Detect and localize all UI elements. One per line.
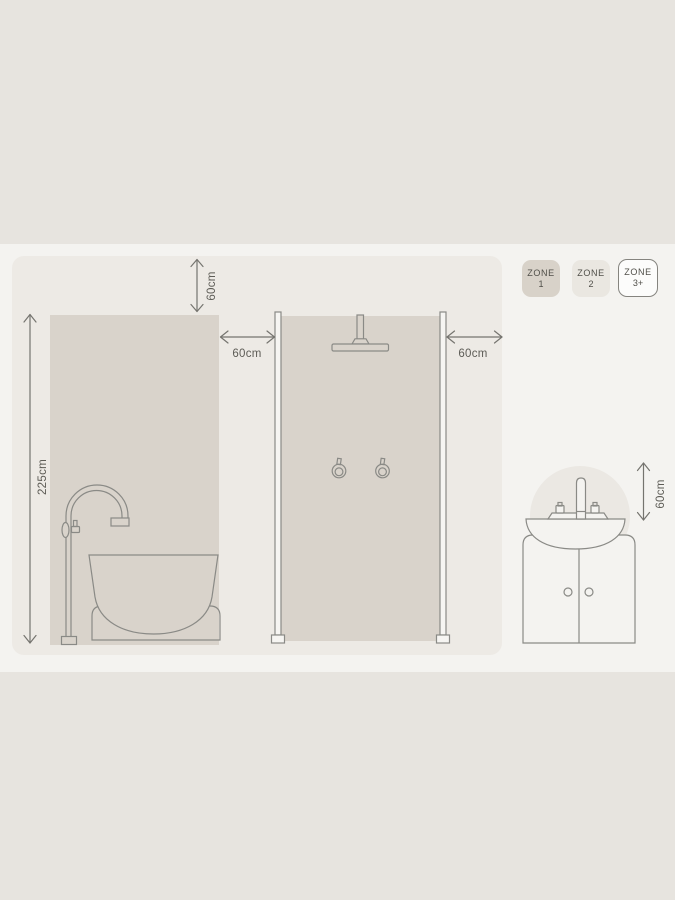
zone-circle-basin [530, 466, 630, 566]
zone1-area-shower [281, 316, 440, 641]
legend-zone2-title: ZONE [577, 268, 604, 279]
zone-height-label: 225cm [36, 452, 50, 502]
legend-zone1-title: ZONE [527, 268, 554, 279]
legend-badge-zone1: ZONE 1 [522, 260, 560, 297]
legend-zone1-value: 1 [538, 279, 543, 290]
shower-clearance-label: 60cm [448, 347, 498, 361]
legend-badge-zone2: ZONE 2 [572, 260, 610, 297]
bathroom-zones-diagram: 60cm 225cm 60cm 60cm 60cm ZONE 1 ZONE 2 … [0, 0, 675, 900]
legend-zone3-value: 3+ [633, 278, 643, 289]
ceiling-clearance-label: 60cm [205, 261, 219, 311]
legend-zone2-value: 2 [588, 279, 593, 290]
legend-zone3-title: ZONE [624, 267, 651, 278]
zone1-area-bathtub [50, 315, 219, 645]
legend-badge-zone3: ZONE 3+ [618, 259, 658, 297]
basin-clearance-label: 60cm [654, 469, 668, 519]
bath-clearance-label: 60cm [222, 347, 272, 361]
